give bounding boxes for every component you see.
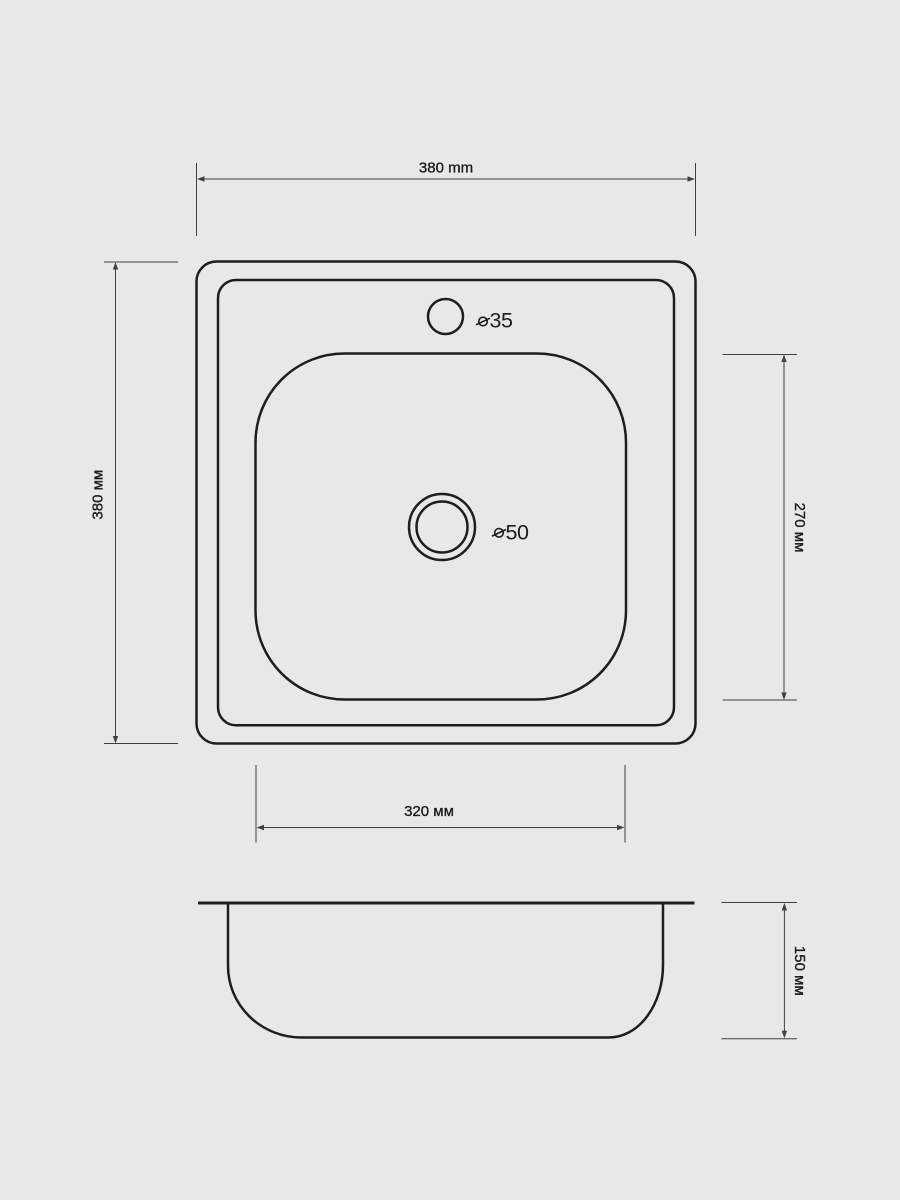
svg-text:380 мм: 380 мм [90,470,107,520]
svg-text:35: 35 [490,309,514,333]
svg-text:320 мм: 320 мм [404,803,454,820]
svg-text:270 мм: 270 мм [791,503,808,553]
svg-text:380 mm: 380 mm [419,160,473,177]
svg-text:150 мм: 150 мм [791,946,808,996]
svg-text:50: 50 [506,521,530,545]
